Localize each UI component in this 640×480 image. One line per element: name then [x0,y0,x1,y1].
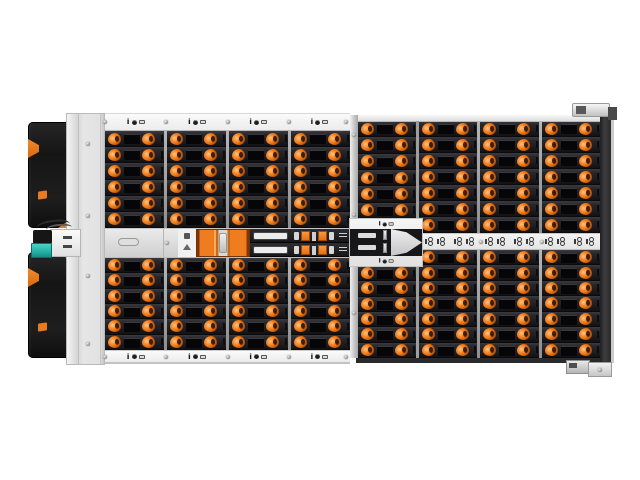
drive-latch-icon [142,335,156,348]
drive-bay [358,312,416,327]
legend-slot: i [228,351,289,362]
drive-bay [542,327,600,342]
drive-label-area [499,188,515,198]
info-glyph: i [249,118,252,125]
drive-label-area [499,140,515,150]
drive-latch-icon [422,154,436,167]
drive-label-area [377,173,393,183]
drive-latch-icon [361,139,375,152]
drive-latch-icon [517,297,531,310]
drive-bay [542,137,600,153]
drive-id-legend: i [378,258,393,265]
drive-latch-icon [108,274,122,287]
bracket-piece [588,362,612,377]
drive-column-group [229,258,288,350]
screw-icon [86,214,90,218]
drive-latch-icon [483,186,497,199]
drive-latch-icon [232,148,246,161]
drive-label-area [561,284,577,294]
chassis-bottom-strip [356,358,600,363]
drive-latch-icon [456,218,470,231]
drive-latch-icon [422,186,436,199]
drive-label-area [377,157,393,167]
legend-row: i [355,220,416,229]
drive-latch-icon [517,186,531,199]
drive-latch-icon [456,186,470,199]
drive-label-area [438,204,454,214]
info-glyph: i [378,258,380,264]
drive-bay [480,250,538,265]
drive-bay [419,201,477,217]
drive-array-center-bottom [358,266,416,358]
drive-latch-icon [483,297,497,310]
drive-column-group [419,121,477,233]
drive-bay [419,265,477,280]
led-dot-icon [254,120,259,125]
drive-symbol-icon [388,259,393,262]
drive-latch-icon [232,259,246,272]
drive-symbol-icon [139,355,145,359]
drive-latch-icon [328,335,342,348]
drive-bay [419,153,477,169]
drive-latch-icon [204,320,218,333]
drive-latch-icon [361,297,375,310]
drive-latch-icon [456,297,470,310]
drive-label-area [499,268,515,278]
drive-latch-icon [544,313,558,326]
status-slot [479,234,539,249]
drive-latch-icon [294,165,308,178]
drive-bay [480,153,538,169]
io-module-label [254,233,287,239]
chassis-right-edge [600,115,614,363]
drive-symbol-icon [200,120,206,124]
led-bar [574,239,576,244]
led-dot-icon [315,120,320,125]
orange-fan-module [196,229,250,257]
drive-symbol-icon [139,120,145,124]
legend-row: i [355,257,416,266]
screw-icon [226,355,230,359]
drive-label-area [438,284,454,294]
drive-latch-icon [294,320,308,333]
drive-latch-icon [578,343,592,356]
drive-label-area [561,315,577,325]
drive-latch-icon [422,266,436,279]
io-module [250,229,350,243]
led-ring [548,241,553,246]
drive-label-area [248,276,264,286]
drive-label-area [377,330,393,340]
orange-wedge-clip [28,268,39,287]
drive-label-area [310,199,326,209]
drive-bay [167,147,226,163]
led-ring [428,241,433,246]
info-glyph: i [188,118,191,125]
drive-label-area [499,124,515,134]
drive-latch-icon [328,165,342,178]
drive-label-area [561,330,577,340]
drive-latch-icon [456,266,470,279]
drive-latch-icon [328,132,342,145]
drive-latch-icon [456,138,470,151]
io-module-label [358,233,376,238]
drive-bay [419,217,477,233]
drive-latch-icon [204,132,218,145]
drive-bay [229,273,288,288]
drive-bay [480,343,538,358]
drive-latch-icon [361,188,375,201]
drive-label-area [248,261,264,271]
clip-icon [329,246,334,254]
drive-bay [419,296,477,311]
tray-handle [118,238,139,246]
led-ring [560,241,565,246]
drive-bay [419,121,477,137]
drive-latch-icon [266,165,280,178]
drive-bay [542,265,600,280]
orange-slot-clip [38,190,47,199]
drive-bay [167,335,226,350]
drive-latch-icon [517,170,531,183]
drive-bay [480,185,538,201]
drive-latch-icon [204,259,218,272]
io-module-fine-print [339,247,347,253]
power-led-icon [485,237,493,247]
drive-label-area [186,183,202,193]
drive-bay [105,163,164,179]
drive-latch-icon [456,282,470,295]
led-dot-icon [132,120,137,125]
led-ring [469,241,474,246]
drive-latch-icon [266,274,280,287]
drive-latch-icon [456,328,470,341]
drive-bay [167,196,226,212]
drive-bay [229,163,288,179]
drive-label-area [310,134,326,144]
drive-bay [542,121,600,137]
legend-slot: i [166,114,227,130]
drive-bay [542,312,600,327]
drive-latch-icon [483,266,497,279]
drive-symbol-icon [261,120,267,124]
drive-latch-icon [108,335,122,348]
drive-latch-icon [328,320,342,333]
drive-latch-icon [544,122,558,135]
drive-column-group [167,258,226,350]
io-module-stack [250,229,350,257]
drive-latch-icon [456,251,470,264]
drive-label-area [377,284,393,294]
drive-column-group [291,131,350,228]
drive-latch-icon [204,181,218,194]
info-glyph: i [378,221,380,227]
drive-bay [480,327,538,342]
drive-latch-icon [361,155,375,168]
drive-latch-icon [395,343,409,356]
drive-label-area [248,166,264,176]
drive-latch-icon [170,305,184,318]
drive-latch-icon [456,343,470,356]
led-bar [545,239,547,244]
left-mounting-ear-bottom [28,252,68,358]
drive-latch-icon [108,305,122,318]
bracket-detail [569,363,577,368]
drive-latch-icon [483,282,497,295]
screw-icon [352,133,356,137]
drive-bay [167,180,226,196]
drive-latch-icon [108,132,122,145]
drive-label-area [248,307,264,317]
legend-slot: i [289,114,350,130]
drive-bay [542,296,600,311]
drive-latch-icon [544,202,558,215]
drive-label-area [561,140,577,150]
drive-label-area [438,299,454,309]
drive-array-left-bottom [105,258,350,350]
drive-bay [105,273,164,288]
drive-column-group [105,131,164,228]
drive-latch-icon [361,267,375,280]
screw-icon [352,311,356,315]
screw-icon [103,355,107,359]
drive-bay [358,170,416,186]
drive-latch-icon [142,320,156,333]
drive-latch-icon [395,267,409,280]
drive-latch-icon [170,165,184,178]
drive-latch-icon [483,343,497,356]
drive-label-area [310,292,326,302]
drive-latch-icon [422,138,436,151]
drive-latch-icon [422,328,436,341]
drive-label-area [561,220,577,230]
screw-icon [352,213,356,217]
screw-icon [287,355,291,359]
drive-label-area [377,269,393,279]
drive-latch-icon [483,154,497,167]
drive-bay [358,327,416,342]
led-dot-icon [254,354,259,359]
drive-latch-icon [422,343,436,356]
drive-bay [229,304,288,319]
drive-bay [291,147,350,163]
drive-array-left-top [105,131,350,228]
drive-latch-icon [483,170,497,183]
info-glyph: i [311,118,314,125]
drive-bay [229,212,288,228]
drive-latch-icon [328,289,342,302]
drive-latch-icon [204,197,218,210]
drive-latch-icon [395,328,409,341]
drive-bay [419,250,477,265]
drive-latch-icon [517,122,531,135]
power-led-icon [574,237,582,247]
drive-latch-icon [266,305,280,318]
drive-bay [105,289,164,304]
screw-icon [226,120,230,124]
drive-latch-icon [294,148,308,161]
drive-latch-icon [142,274,156,287]
drive-bay [542,217,600,233]
drive-bay [480,265,538,280]
drive-label-area [186,322,202,332]
drive-bay [167,319,226,334]
drive-latch-icon [578,297,592,310]
drive-latch-icon [578,218,592,231]
drive-label-area [248,199,264,209]
drive-bay [480,217,538,233]
drive-label-area [124,183,140,193]
led-bar [497,239,499,244]
drive-label-area [186,338,202,348]
drive-bay [105,258,164,273]
led-bar [454,239,456,244]
drive-label-area [310,322,326,332]
drive-latch-icon [456,122,470,135]
led-indicator-pair [574,237,594,247]
fan-module-handle [219,233,227,253]
drive-label-area [438,315,454,325]
led-ring [589,241,594,246]
drive-column-group [291,258,350,350]
drive-latch-icon [578,328,592,341]
drive-bay [105,335,164,350]
drive-bay [105,196,164,212]
drive-label-area [561,188,577,198]
drive-latch-icon [422,202,436,215]
drive-latch-icon [170,259,184,272]
led-ring [529,241,534,246]
drive-latch-icon [328,197,342,210]
drive-latch-icon [395,282,409,295]
drive-column-group [358,266,416,358]
drive-latch-icon [232,274,246,287]
drive-latch-icon [422,218,436,231]
clip-icon [294,232,299,240]
drive-latch-icon [544,251,558,264]
drive-latch-icon [578,282,592,295]
legend-slot: i [289,351,350,362]
drive-label-area [186,292,202,302]
drive-bay [542,250,600,265]
drive-bay [480,201,538,217]
drive-label-area [561,346,577,356]
io-module [250,243,350,257]
drive-label-area [561,299,577,309]
legend-slot: i [105,351,166,362]
clip-divider [312,246,316,255]
io-module-label [254,247,287,253]
drive-label-area [499,284,515,294]
drive-latch-icon [422,282,436,295]
drive-bay [358,203,416,219]
drive-bay [291,319,350,334]
drive-bay [542,201,600,217]
drive-bay [358,343,416,358]
drive-column-group [105,258,164,350]
drive-latch-icon [544,297,558,310]
led-ring [440,241,445,246]
drive-label-area [499,220,515,230]
drive-bay [167,212,226,228]
drive-id-legend: i [378,221,393,228]
drive-latch-icon [142,132,156,145]
blank-tray [105,229,179,257]
status-led-strip [419,233,600,250]
drive-label-area [377,189,393,199]
drive-latch-icon [578,138,592,151]
label-mark [63,245,72,248]
power-led-icon [586,237,594,247]
drive-latch-icon [544,154,558,167]
led-bar [526,239,528,244]
drive-bay [419,169,477,185]
drive-label-area [186,215,202,225]
drive-id-legend: i [127,118,145,126]
drive-column-group [542,250,600,358]
connector-housing [33,230,52,244]
drive-label-area [124,307,140,317]
drive-latch-icon [328,259,342,272]
drive-bay [358,297,416,312]
drive-latch-icon [361,328,375,341]
drive-latch-icon [232,305,246,318]
drive-id-legend: i [249,118,267,126]
drive-label-area [186,134,202,144]
drive-latch-icon [108,259,122,272]
info-glyph: i [127,353,130,360]
power-led-icon [545,237,553,247]
info-glyph: i [249,353,252,360]
drive-latch-icon [266,181,280,194]
center-arrow-bracket: i i [350,219,422,266]
drive-label-area [561,172,577,182]
drive-bay [419,281,477,296]
drive-bay [229,258,288,273]
drive-latch-icon [361,343,375,356]
drive-latch-icon [483,218,497,231]
drive-bay [480,296,538,311]
drive-column-group [542,121,600,233]
drive-latch-icon [142,148,156,161]
drive-latch-icon [108,181,122,194]
drive-latch-icon [170,274,184,287]
drive-symbol-icon [322,120,328,124]
chassis-top-lip [356,115,600,122]
drive-latch-icon [328,274,342,287]
drive-bay [291,131,350,147]
led-ring [517,241,522,246]
drive-label-area [438,188,454,198]
drive-latch-icon [456,313,470,326]
label-mark [63,236,72,239]
drive-bay [229,319,288,334]
drive-label-area [310,338,326,348]
drive-label-area [438,124,454,134]
drive-label-area [124,276,140,286]
drive-label-area [124,322,140,332]
drive-latch-icon [108,197,122,210]
screw-icon [540,240,544,244]
drive-label-area [561,268,577,278]
drive-latch-icon [266,197,280,210]
drive-bay [105,147,164,163]
drive-latch-icon [266,320,280,333]
drive-latch-icon [232,320,246,333]
drive-latch-icon [170,197,184,210]
drive-label-area [499,299,515,309]
drive-label-area [499,156,515,166]
